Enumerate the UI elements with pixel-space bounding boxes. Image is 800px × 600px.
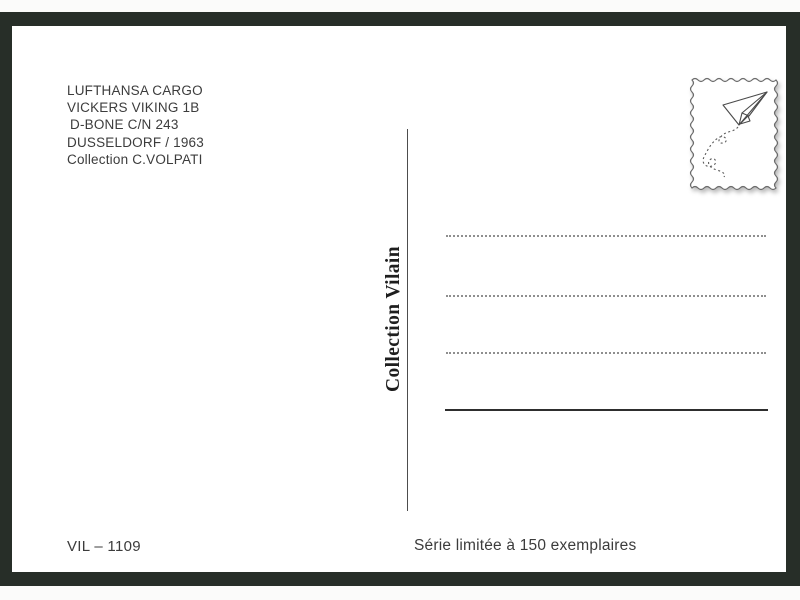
info-line-collection-credit: Collection C.VOLPATI xyxy=(67,151,204,168)
postcard-back: LUFTHANSA CARGO VICKERS VIKING 1B D-BONE… xyxy=(12,26,786,572)
stamp-box xyxy=(684,72,782,194)
address-dotted-line-2 xyxy=(446,295,766,297)
aircraft-info-block: LUFTHANSA CARGO VICKERS VIKING 1B D-BONE… xyxy=(67,82,204,168)
address-dotted-line-1 xyxy=(446,235,766,237)
info-line-location-year: DUSSELDORF / 1963 xyxy=(67,134,204,151)
divider-line xyxy=(407,129,408,511)
address-dotted-line-3 xyxy=(446,352,766,354)
collection-vilain-label: Collection Vilain xyxy=(383,233,409,405)
stamp-wavy-border xyxy=(684,72,782,194)
info-line-airline: LUFTHANSA CARGO xyxy=(67,82,204,99)
reference-number: VIL – 1109 xyxy=(67,538,141,555)
edition-note: Série limitée à 150 exemplaires xyxy=(414,537,636,555)
info-line-registration: D-BONE C/N 243 xyxy=(67,116,204,133)
address-solid-line xyxy=(445,409,768,411)
info-line-aircraft: VICKERS VIKING 1B xyxy=(67,99,204,116)
postcard-photo: LUFTHANSA CARGO VICKERS VIKING 1B D-BONE… xyxy=(0,0,800,600)
